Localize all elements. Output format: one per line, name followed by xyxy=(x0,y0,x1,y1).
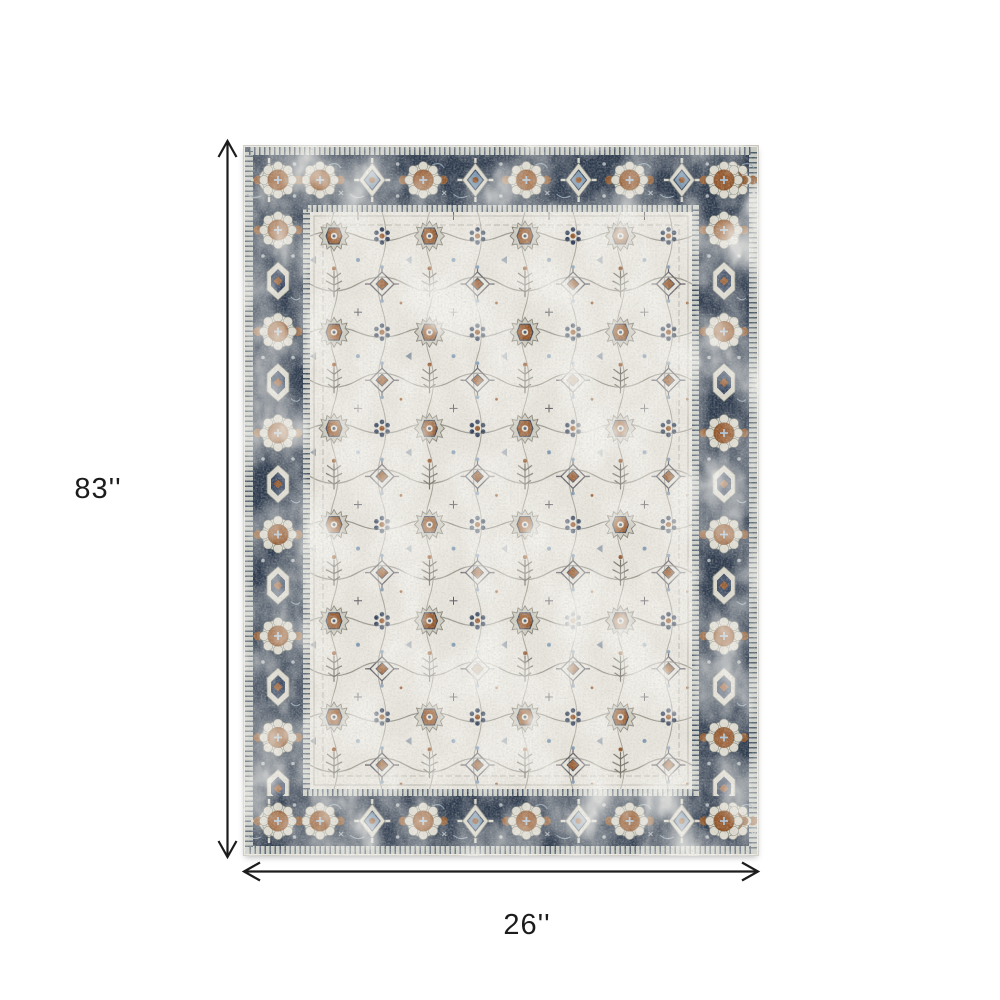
rug-image xyxy=(243,145,759,856)
product-dimension-figure: 83'' 26'' xyxy=(0,0,1000,1000)
height-dimension-label: 83'' xyxy=(48,473,148,505)
width-dimension-arrow xyxy=(241,856,761,886)
grain-overlay xyxy=(243,145,759,856)
width-dimension-label: 26'' xyxy=(477,909,577,941)
height-dimension-arrow xyxy=(213,138,243,860)
rug-artwork xyxy=(243,145,759,856)
